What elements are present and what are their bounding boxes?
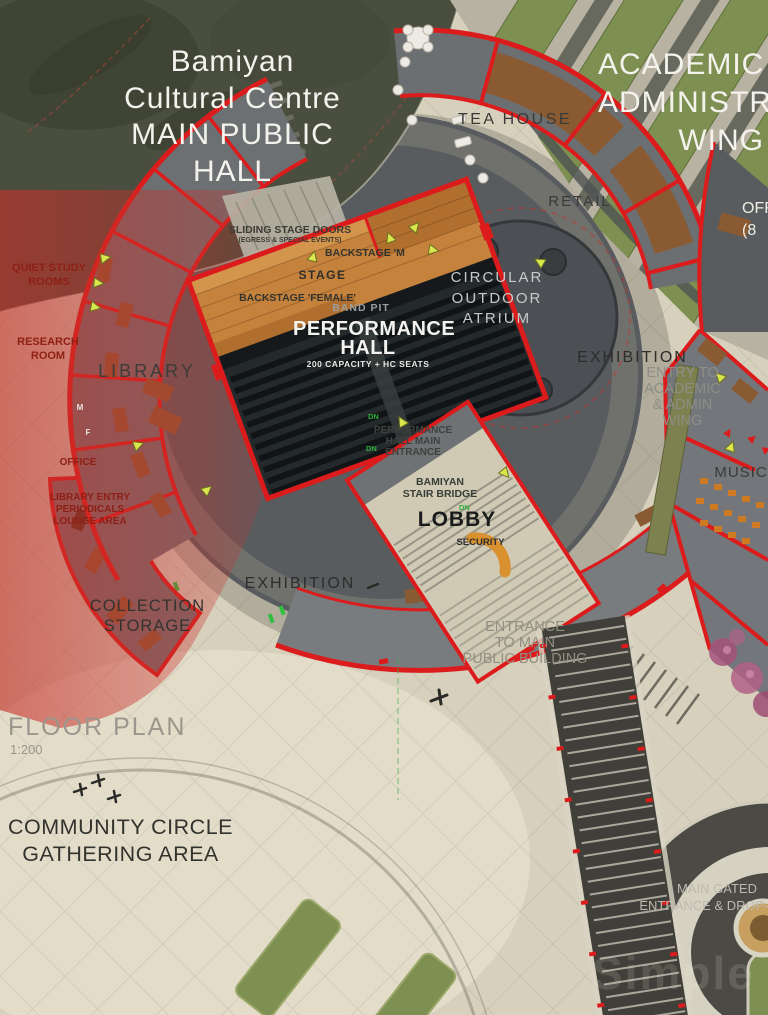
- label-performance-hall-capacity: 200 CAPACITY + HC SEATS: [283, 359, 453, 369]
- label-floor-plan: FLOOR PLAN: [8, 712, 186, 743]
- watermark: Simple: [592, 945, 755, 1001]
- label-floor-plan-scale: 1:200: [10, 742, 43, 758]
- page-title: Bamiyan Cultural Centre MAIN PUBLIC HALL: [60, 44, 405, 190]
- stair-dn-marker-2: DN: [459, 503, 470, 512]
- label-performance-hall: PERFORMANCE HALL: [293, 320, 443, 358]
- label-collection-storage: COLLECTION STORAGE: [85, 597, 210, 637]
- label-office: OFFICE: [40, 457, 116, 469]
- label-tea-house: TEA HOUSE: [440, 110, 590, 130]
- wing-title: ACADEMIC ADMINISTRA WING: [598, 46, 764, 159]
- stair-dn-marker-3: DN: [366, 444, 377, 453]
- label-main-gated-entrance: MAIN GATED ENTRANCE & DROP-OFF: [612, 881, 768, 915]
- label-security: SECURITY: [443, 537, 518, 549]
- label-exhibition-south: EXHIBITION: [235, 574, 365, 594]
- label-lobby: LOBBY: [412, 507, 502, 533]
- label-wc-female: F: [82, 428, 94, 438]
- label-music: MUSIC: [706, 464, 768, 482]
- label-performance-hall-entrance: PERFORMANCE HALL MAIN ENTRANCE: [363, 426, 463, 458]
- label-bamiyan-stair-bridge: BAMIYAN STAIR BRIDGE: [385, 476, 495, 500]
- label-entry-to-academic: ENTRY TO ACADEMIC & ADMIN WING: [625, 366, 740, 430]
- label-sliding-stage-doors: SLIDING STAGE DOORS: [215, 224, 365, 237]
- label-entrance-to-main: ENTRANCE TO MAIN PUBLIC BUILDING: [455, 619, 595, 668]
- label-research-room: RESEARCH ROOM: [0, 336, 96, 364]
- floor-plan-screenshot: Bamiyan Cultural Centre MAIN PUBLIC HALL…: [0, 0, 768, 1015]
- label-library: LIBRARY: [88, 361, 206, 383]
- label-circular-outdoor-atrium: CIRCULAR OUTDOOR ATRIUM: [437, 268, 557, 330]
- label-quiet-study-rooms: QUIET STUDY ROOMS: [0, 262, 98, 290]
- label-backstage-male: BACKSTAGE 'M: [305, 247, 425, 260]
- label-wc-male: M: [74, 403, 86, 413]
- label-sliding-stage-doors-note: (EGRESS & SPECIAL EVENTS): [215, 237, 365, 246]
- label-retail: RETAIL: [530, 193, 630, 211]
- label-community-circle: COMMUNITY CIRCLE GATHERING AREA: [8, 814, 233, 868]
- stair-dn-marker-1: DN: [368, 412, 379, 421]
- label-offices: OFF (8: [742, 198, 768, 241]
- label-stage: STAGE: [285, 268, 360, 283]
- label-library-entry: LIBRARY ENTRY PERIODICALS LOUNGE AREA: [30, 492, 150, 527]
- label-band-pit: BAND PIT: [325, 302, 397, 315]
